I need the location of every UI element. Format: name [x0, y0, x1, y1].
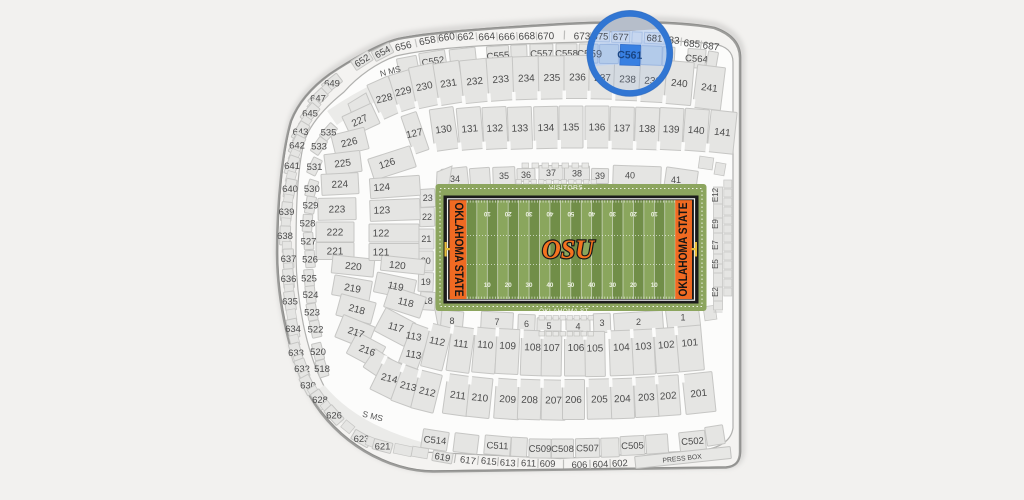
svg-text:23: 23: [423, 193, 433, 203]
svg-text:634: 634: [285, 324, 301, 335]
svg-text:241: 241: [700, 82, 718, 95]
svg-text:670: 670: [537, 31, 554, 43]
svg-text:10: 10: [651, 282, 658, 289]
svg-text:OKLAHOMA ST: OKLAHOMA ST: [539, 308, 589, 315]
svg-text:205: 205: [591, 394, 608, 405]
svg-text:110: 110: [477, 339, 494, 351]
svg-text:533: 533: [311, 141, 327, 152]
svg-text:21: 21: [421, 234, 431, 244]
svg-text:224: 224: [331, 179, 349, 191]
svg-text:105: 105: [587, 343, 604, 354]
svg-text:E2: E2: [711, 287, 720, 297]
svg-text:535: 535: [321, 127, 337, 138]
svg-text:235: 235: [544, 73, 561, 84]
svg-text:41: 41: [671, 175, 681, 185]
svg-text:626: 626: [326, 410, 342, 421]
svg-text:109: 109: [499, 341, 517, 353]
svg-text:C509: C509: [529, 444, 552, 455]
svg-text:220: 220: [344, 261, 362, 274]
svg-text:C502: C502: [681, 436, 704, 448]
svg-text:136: 136: [589, 123, 606, 134]
svg-text:609: 609: [540, 459, 556, 470]
svg-text:19: 19: [421, 277, 431, 287]
svg-text:638: 638: [277, 231, 293, 242]
svg-text:C514: C514: [423, 434, 447, 447]
svg-text:3: 3: [599, 318, 604, 328]
svg-text:530: 530: [304, 184, 320, 195]
svg-text:40: 40: [588, 210, 595, 217]
svg-text:606: 606: [571, 460, 587, 471]
svg-text:20: 20: [630, 282, 637, 289]
svg-text:C505: C505: [621, 440, 644, 452]
svg-text:121: 121: [373, 248, 390, 259]
svg-text:602: 602: [612, 458, 628, 470]
svg-text:207: 207: [545, 395, 562, 406]
svg-text:208: 208: [521, 395, 538, 407]
svg-text:662: 662: [457, 31, 475, 44]
svg-text:124: 124: [373, 182, 391, 194]
svg-text:36: 36: [521, 170, 531, 180]
svg-text:40: 40: [546, 282, 553, 289]
svg-text:222: 222: [327, 228, 344, 239]
svg-text:233: 233: [492, 74, 510, 86]
svg-text:139: 139: [663, 124, 681, 136]
svg-text:10: 10: [483, 210, 490, 217]
svg-text:123: 123: [373, 205, 390, 217]
svg-text:203: 203: [638, 392, 656, 404]
svg-text:132: 132: [486, 123, 504, 135]
svg-text:223: 223: [329, 204, 346, 215]
svg-text:520: 520: [310, 347, 326, 358]
svg-text:OSU: OSU: [542, 235, 595, 264]
svg-text:2: 2: [636, 317, 641, 327]
svg-text:1: 1: [680, 313, 685, 323]
svg-text:666: 666: [498, 31, 516, 43]
svg-text:107: 107: [543, 343, 560, 354]
svg-text:524: 524: [303, 290, 319, 301]
svg-text:615: 615: [480, 456, 497, 469]
svg-text:50: 50: [567, 210, 574, 217]
svg-text:OKLAHOMA STATE: OKLAHOMA STATE: [676, 203, 690, 297]
svg-text:141: 141: [713, 127, 731, 140]
svg-text:20: 20: [505, 282, 512, 289]
svg-text:30: 30: [609, 210, 616, 217]
svg-text:135: 135: [563, 123, 580, 134]
svg-text:30: 30: [609, 282, 616, 289]
svg-text:34: 34: [450, 174, 460, 184]
svg-text:232: 232: [466, 76, 484, 89]
svg-text:635: 635: [282, 296, 298, 307]
svg-text:529: 529: [303, 200, 319, 211]
svg-text:621: 621: [375, 441, 391, 452]
svg-text:640: 640: [282, 184, 298, 195]
svg-text:50: 50: [567, 282, 574, 289]
svg-text:668: 668: [518, 31, 536, 43]
svg-text:30: 30: [526, 282, 533, 289]
svg-text:120: 120: [388, 260, 406, 273]
svg-text:522: 522: [308, 324, 324, 335]
svg-text:617: 617: [459, 454, 476, 467]
svg-text:531: 531: [307, 162, 323, 173]
svg-text:526: 526: [302, 254, 318, 265]
svg-text:10: 10: [484, 282, 491, 289]
svg-text:C508: C508: [551, 444, 574, 455]
svg-text:30: 30: [525, 210, 532, 217]
svg-text:C507: C507: [576, 443, 599, 454]
svg-text:202: 202: [660, 390, 678, 402]
svg-text:102: 102: [658, 339, 676, 351]
svg-text:639: 639: [279, 207, 295, 218]
svg-text:106: 106: [568, 343, 585, 354]
svg-text:122: 122: [373, 229, 390, 240]
svg-text:4: 4: [575, 322, 580, 332]
svg-text:5: 5: [546, 321, 551, 331]
svg-text:VISITORS: VISITORS: [549, 185, 583, 192]
svg-text:134: 134: [538, 123, 555, 134]
svg-text:E12: E12: [711, 187, 720, 202]
svg-text:138: 138: [639, 124, 656, 136]
svg-text:111: 111: [453, 338, 470, 351]
svg-text:108: 108: [524, 342, 541, 354]
svg-text:C511: C511: [486, 440, 509, 452]
svg-text:137: 137: [614, 123, 631, 134]
svg-text:206: 206: [565, 395, 582, 406]
svg-text:528: 528: [300, 218, 316, 229]
svg-text:40: 40: [625, 171, 635, 181]
svg-text:131: 131: [461, 123, 479, 135]
svg-text:642: 642: [289, 140, 305, 151]
svg-text:664: 664: [478, 31, 496, 43]
svg-text:204: 204: [614, 394, 631, 406]
svg-text:133: 133: [511, 123, 528, 135]
svg-text:E7: E7: [711, 240, 720, 250]
svg-text:40: 40: [546, 210, 553, 217]
svg-text:225: 225: [334, 157, 352, 170]
svg-text:20: 20: [629, 210, 636, 217]
svg-text:6: 6: [524, 319, 529, 329]
svg-text:103: 103: [635, 341, 653, 353]
svg-text:234: 234: [518, 73, 535, 85]
svg-text:101: 101: [681, 337, 699, 349]
svg-text:20: 20: [504, 210, 511, 217]
svg-text:37: 37: [546, 168, 556, 178]
svg-text:641: 641: [284, 161, 300, 172]
svg-text:40: 40: [588, 282, 595, 289]
svg-text:611: 611: [521, 458, 537, 470]
svg-text:523: 523: [304, 307, 320, 318]
svg-text:240: 240: [670, 78, 688, 90]
svg-text:E5: E5: [711, 259, 720, 269]
svg-text:527: 527: [301, 236, 317, 247]
svg-text:604: 604: [592, 459, 608, 471]
svg-text:OKLAHOMA STATE: OKLAHOMA STATE: [452, 203, 466, 297]
svg-text:525: 525: [301, 273, 317, 284]
svg-text:210: 210: [471, 392, 489, 405]
svg-text:209: 209: [499, 394, 517, 406]
svg-text:221: 221: [327, 247, 344, 258]
svg-text:22: 22: [422, 212, 432, 222]
svg-text:10: 10: [650, 210, 657, 217]
svg-text:104: 104: [613, 342, 630, 354]
svg-text:E9: E9: [711, 219, 720, 229]
svg-text:211: 211: [449, 389, 467, 402]
svg-text:140: 140: [687, 125, 705, 137]
svg-text:613: 613: [499, 457, 516, 469]
svg-text:636: 636: [281, 274, 297, 285]
svg-text:673: 673: [574, 31, 591, 42]
svg-text:7: 7: [494, 317, 499, 327]
svg-text:35: 35: [499, 171, 509, 181]
svg-text:518: 518: [314, 364, 330, 375]
svg-text:236: 236: [569, 73, 586, 84]
svg-text:38: 38: [572, 169, 582, 179]
svg-text:201: 201: [690, 388, 708, 401]
